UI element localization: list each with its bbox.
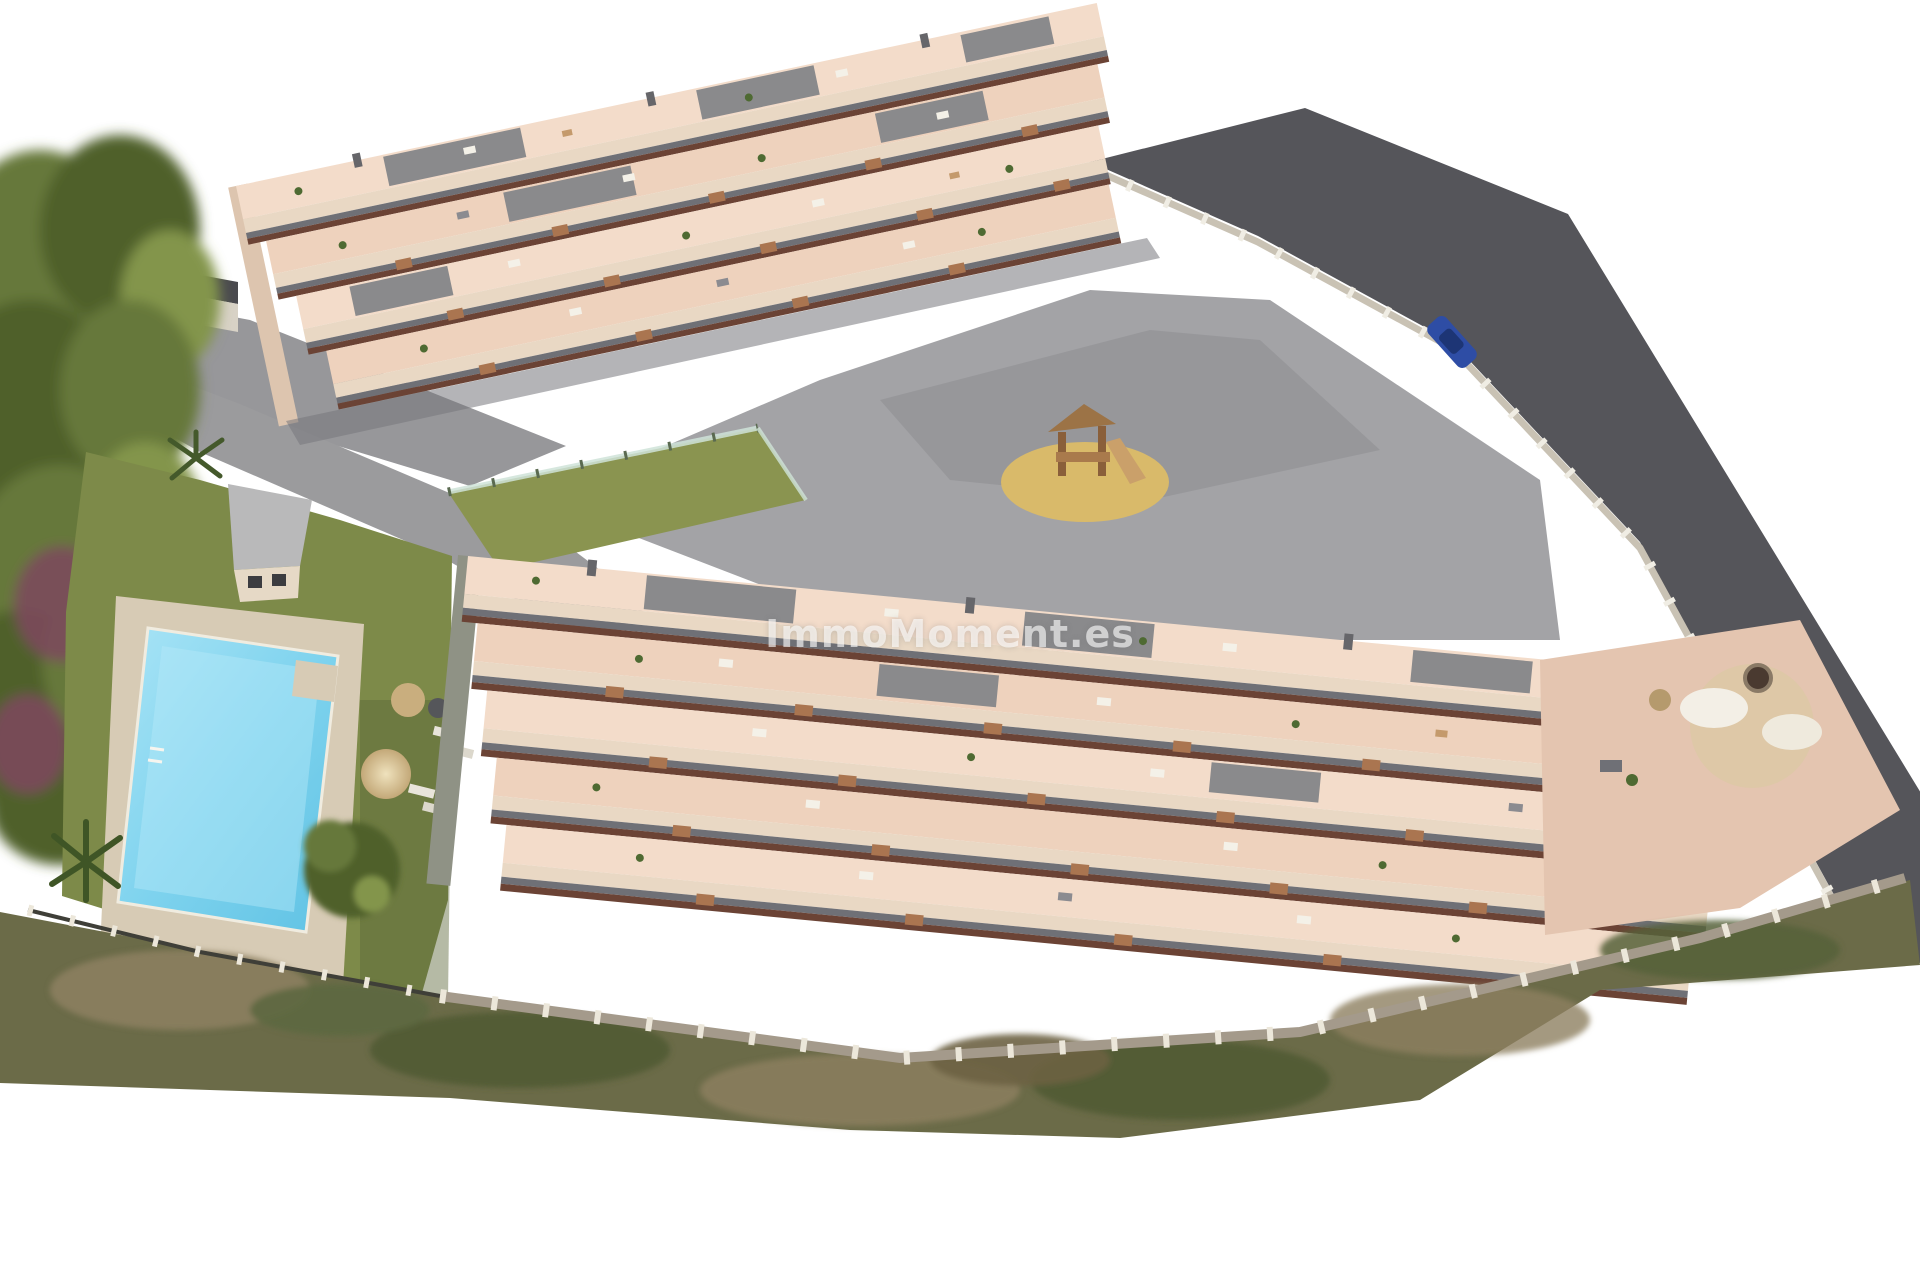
chimney	[587, 560, 597, 577]
pool-ripples	[134, 646, 320, 912]
wicker-chair	[1649, 689, 1671, 711]
terrace-furniture	[1097, 697, 1112, 706]
terrace-furniture	[1150, 768, 1165, 777]
wooden-stairs	[1070, 863, 1089, 876]
wooden-stairs	[1114, 934, 1133, 947]
terrace-furniture	[805, 800, 820, 809]
fire-pit	[1745, 665, 1771, 691]
wooden-stairs	[1027, 793, 1046, 806]
terrace-furniture	[1508, 803, 1523, 812]
pool-ladder	[148, 760, 162, 762]
wooden-stairs	[983, 722, 1002, 735]
terrace-furniture	[1222, 643, 1237, 652]
wooden-stairs	[605, 686, 624, 699]
sun-parasol	[361, 749, 411, 799]
chimney	[965, 597, 975, 614]
wooden-stairs	[871, 844, 890, 857]
render-scene	[0, 0, 1920, 1280]
scrub-patch	[250, 984, 430, 1036]
terrace-plant	[1626, 774, 1638, 786]
chimney	[1343, 633, 1353, 650]
wooden-stairs	[1362, 759, 1381, 772]
wooden-stairs	[649, 756, 668, 769]
wooden-stairs	[1269, 882, 1288, 895]
terrace-furniture	[1223, 842, 1238, 851]
playground-deck	[1056, 452, 1110, 462]
aerial-render-canvas: ImmoMoment.es	[0, 0, 1920, 1280]
wooden-stairs	[696, 893, 715, 906]
wooden-stairs	[1405, 829, 1424, 842]
terrace-furniture	[859, 871, 874, 880]
terrace-furniture	[752, 728, 767, 737]
playground-post	[1098, 426, 1106, 476]
wooden-stairs	[1216, 811, 1235, 824]
terrace-furniture	[1435, 730, 1448, 738]
pool-house-wall	[234, 566, 300, 602]
pool-steps	[292, 660, 338, 702]
pool-house-window	[272, 574, 286, 586]
wooden-stairs	[1323, 954, 1342, 967]
terrace-planter	[1600, 760, 1622, 772]
round-daybed	[391, 683, 425, 717]
terrace-furniture	[884, 608, 899, 617]
pool-ladder	[150, 748, 164, 750]
wooden-stairs	[905, 914, 924, 927]
terrace-furniture	[1297, 915, 1312, 924]
wooden-stairs	[794, 704, 813, 717]
wooden-stairs	[1173, 740, 1192, 753]
pool-house-roof	[228, 484, 312, 570]
outdoor-sofa	[1762, 714, 1822, 750]
wooden-stairs	[838, 775, 857, 788]
pool-house-window	[248, 576, 262, 588]
wooden-stairs	[672, 825, 691, 838]
wooden-stairs	[1468, 902, 1487, 915]
terrace-furniture	[719, 659, 734, 668]
outdoor-sofa	[1680, 688, 1748, 728]
terrace-furniture	[1058, 892, 1073, 901]
